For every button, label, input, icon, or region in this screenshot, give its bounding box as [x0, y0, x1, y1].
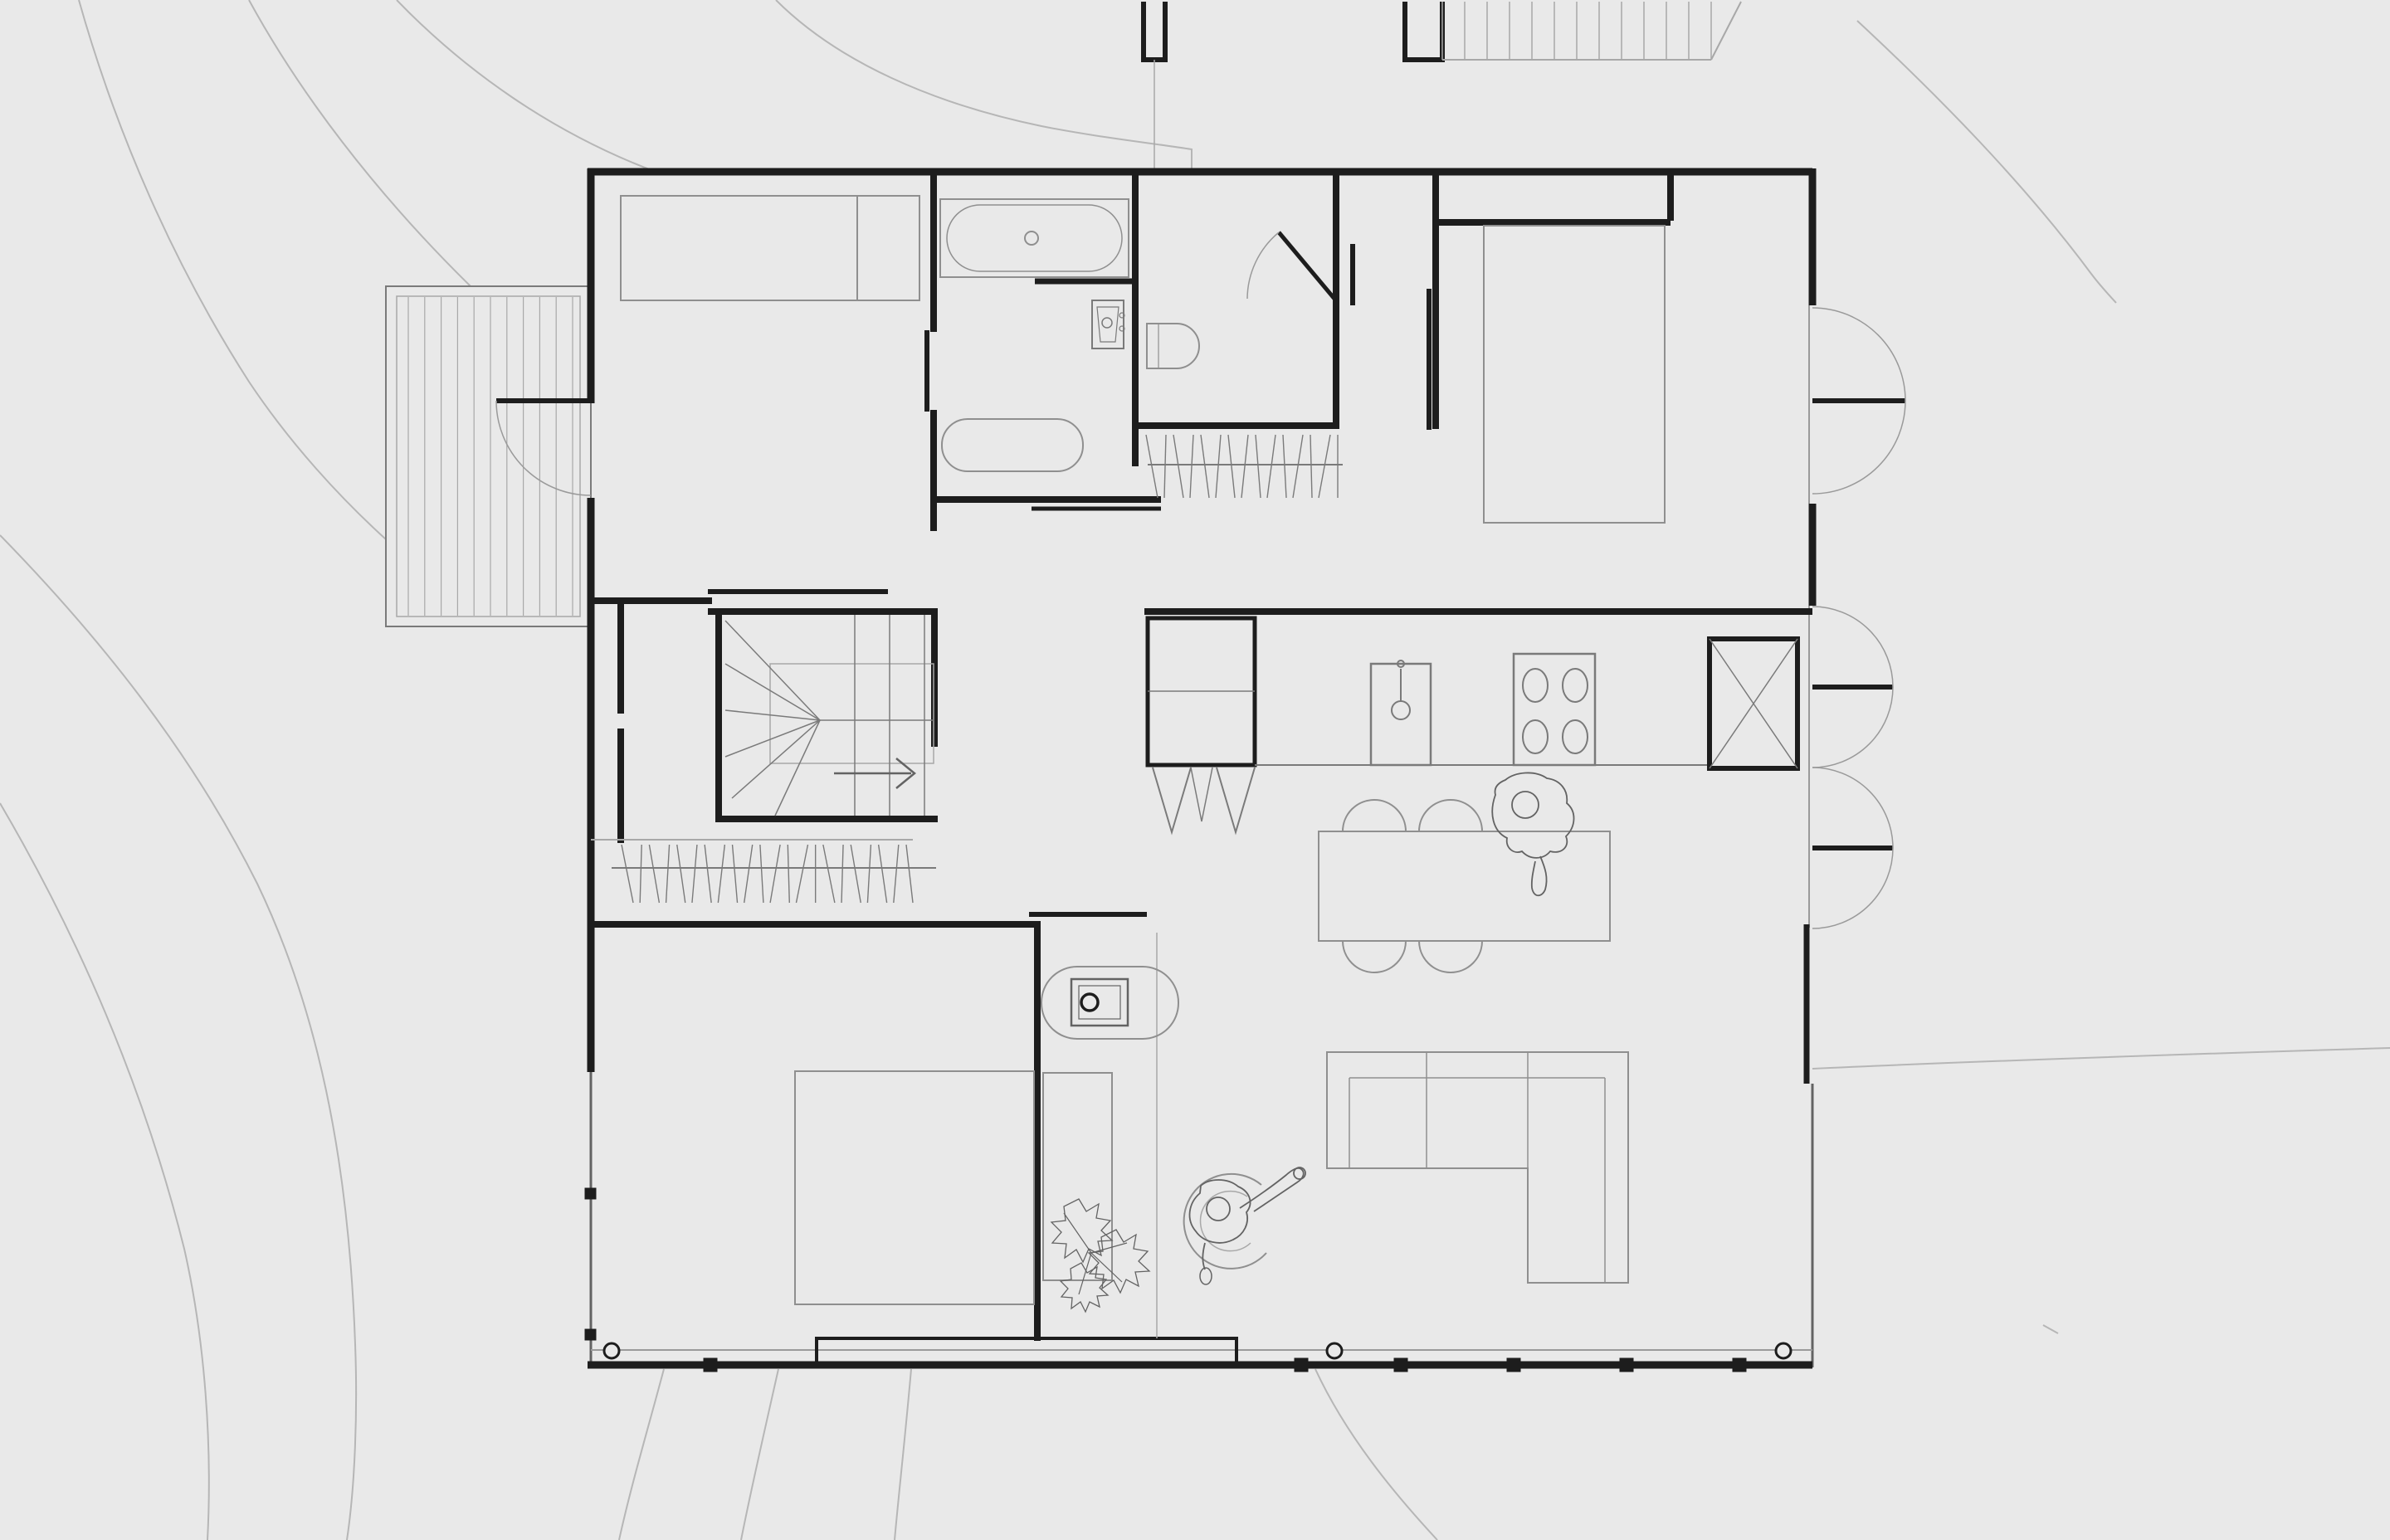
floor-plan-page [0, 0, 2390, 1540]
sill-marker [1507, 1358, 1520, 1372]
porch-post [604, 1343, 619, 1358]
sill-marker [1733, 1358, 1746, 1372]
sill-marker [1295, 1358, 1308, 1372]
window-mullion [585, 1329, 596, 1340]
sill-marker [704, 1358, 717, 1372]
porch-post [1776, 1343, 1791, 1358]
sill-marker [1620, 1358, 1633, 1372]
window-mullion [585, 1188, 596, 1199]
floor-plan-drawing [0, 0, 2390, 1540]
porch-post [1327, 1343, 1342, 1358]
sill-marker [1394, 1358, 1407, 1372]
